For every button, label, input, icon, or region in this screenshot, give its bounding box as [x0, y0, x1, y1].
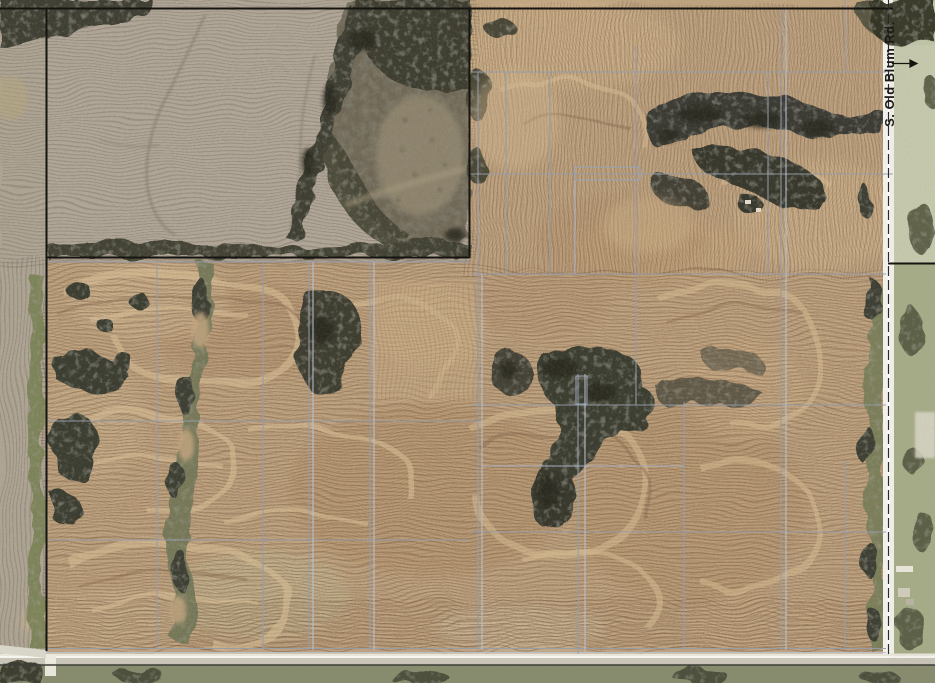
svg-text:S. Old Blum Rd.: S. Old Blum Rd.	[882, 21, 897, 127]
